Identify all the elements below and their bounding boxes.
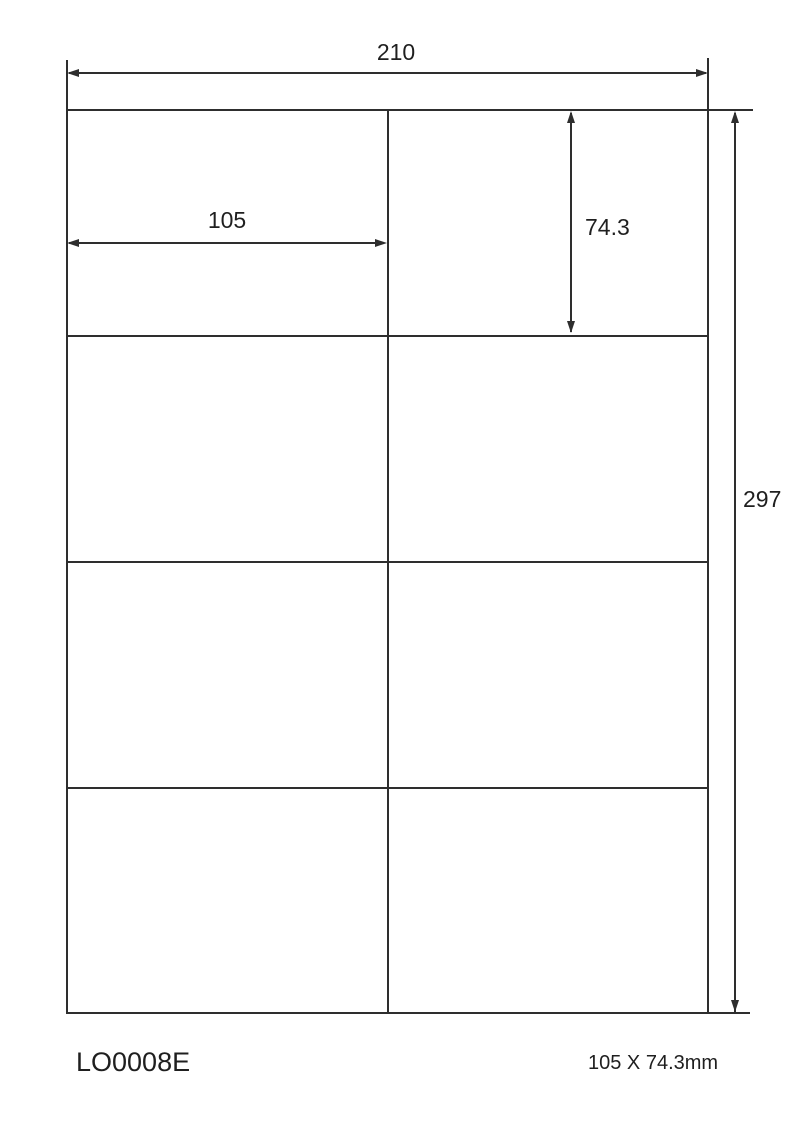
dim-label-height-label: 74.3	[585, 216, 630, 239]
row-divider-1	[67, 335, 708, 337]
product-code: LO0008E	[76, 1049, 190, 1076]
dim-label-width-arrowhead-left	[67, 239, 79, 247]
dim-sheet-width-arrowhead-left	[67, 69, 79, 77]
dim-label-height-arrowhead-bottom	[567, 321, 575, 333]
dim-sheet-height-line	[734, 113, 736, 1012]
label-sheet-diagram: 210 105 74.3 297 LO0008E 105 X 74.3mm	[0, 0, 796, 1124]
dim-sheet-width-line	[69, 72, 706, 74]
sheet-left-border	[66, 60, 68, 1014]
sheet-bottom-border	[67, 1012, 750, 1014]
dim-label-height-line	[570, 113, 572, 332]
label-size-text: 105 X 74.3mm	[588, 1053, 718, 1073]
dim-label-width-line	[69, 242, 376, 244]
dim-sheet-height-arrowhead-top	[731, 111, 739, 123]
dim-sheet-width-label: 210	[377, 41, 415, 64]
sheet-right-border	[707, 58, 709, 1014]
row-divider-3	[67, 787, 708, 789]
sheet-top-border	[67, 109, 753, 111]
dim-label-width-label: 105	[208, 209, 246, 232]
dim-label-height-arrowhead-top	[567, 111, 575, 123]
dim-label-width-arrowhead-right	[375, 239, 387, 247]
dim-sheet-height-label: 297	[743, 488, 781, 511]
dim-sheet-width-arrowhead-right	[696, 69, 708, 77]
dim-sheet-height-arrowhead-bottom	[731, 1000, 739, 1012]
row-divider-2	[67, 561, 708, 563]
